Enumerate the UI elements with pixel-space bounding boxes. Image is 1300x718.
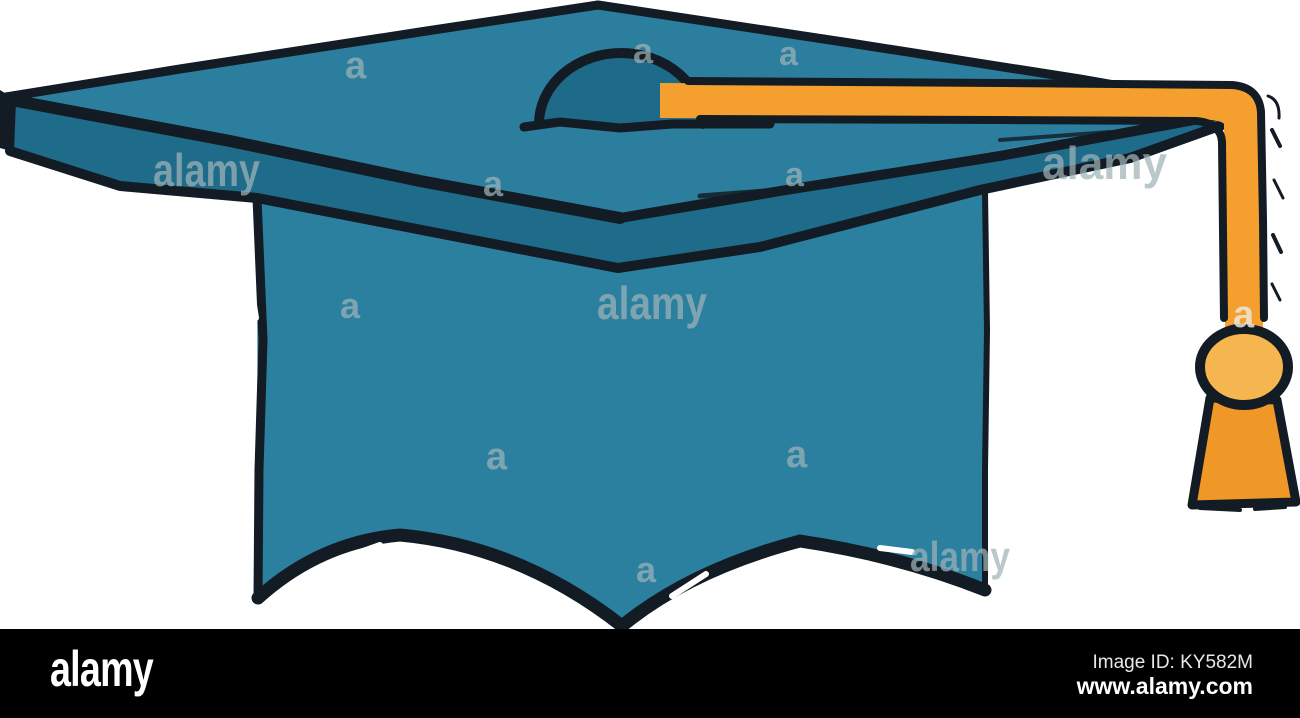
watermark-word: alamy [1042, 137, 1167, 189]
watermark-letter: a [786, 434, 808, 476]
watermark-letter: a [779, 35, 799, 73]
tassel-ball [1200, 329, 1288, 405]
tassel-fringe [1192, 398, 1296, 505]
footer-bar: alamy Image ID: KY582M www.alamy.com [0, 629, 1300, 718]
watermark-word: alamy [153, 144, 260, 196]
image-id-text: Image ID: KY582M [1092, 652, 1253, 673]
watermark-letter: a [636, 549, 657, 590]
watermark-letter: a [486, 436, 508, 478]
watermark-letter: a [345, 45, 367, 87]
watermark-letter: a [633, 30, 654, 71]
watermark-word: alamy [910, 533, 1011, 580]
website-text: www.alamy.com [1076, 673, 1253, 699]
watermark-word: alamy [597, 277, 707, 329]
graduation-cap-illustration: alamy alamy alamy alamy a a a a a a a a … [0, 0, 1300, 718]
watermark-letter: a [1233, 294, 1255, 336]
watermark-letter: a [785, 156, 805, 194]
mortarboard [0, 4, 1240, 268]
alamy-logo: alamy [50, 641, 154, 697]
stock-photo-page: alamy alamy alamy alamy a a a a a a a a … [0, 0, 1300, 718]
watermark-letter: a [483, 163, 504, 204]
watermark-letter: a [340, 285, 361, 326]
board-left-tip [0, 90, 16, 152]
